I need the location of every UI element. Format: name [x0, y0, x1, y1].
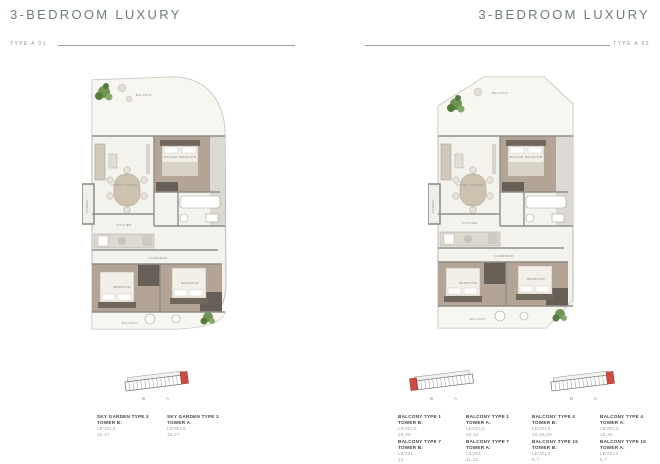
- levels-value: 24,34: [466, 432, 528, 438]
- room-label: KITCHEN: [462, 221, 477, 225]
- room-label: BEDROOM: [459, 281, 477, 285]
- type-label-a01: TYPE A 01: [10, 41, 47, 47]
- room-label: MASTER BEDROOM: [509, 155, 542, 159]
- room-label: KITCHEN: [116, 223, 131, 227]
- unit-info-block: BALCONY TYPE 4 TOWER B: LEVELS 15,25,26: [532, 414, 594, 438]
- room-label: BEDROOM: [181, 281, 199, 285]
- room-label: LIVING / DINING: [110, 183, 138, 187]
- tower-letter-b: B: [570, 396, 573, 401]
- room-label: CORRIDOR: [495, 254, 514, 258]
- dining-table: [114, 174, 140, 206]
- floor-plan-type-a02: BALCONY LIVING / DINING MASTER BEDROOM K…: [428, 66, 584, 342]
- unit-info-block: BALCONY TYPE 7 TOWER A: LEVEL 11,12: [466, 439, 528, 463]
- bed: [170, 268, 208, 304]
- unit-info-block: BALCONY TYPE 7 TOWER B: LEVEL 12: [398, 439, 460, 463]
- highlighted-unit: [409, 378, 417, 391]
- floor-plan-type-a01: BALCONY LIVING / DINING MASTER BEDROOM K…: [82, 66, 238, 342]
- levels-value: 11,12: [466, 457, 528, 463]
- toilet: [180, 214, 188, 222]
- unit-info-block: SKY GARDEN TYPE 2 TOWER B: LEVELS 15,27: [97, 414, 159, 438]
- tower-letter-b: B: [142, 396, 145, 401]
- unit-info-block: BALCONY TYPE 15 TOWER A: LEVELS 5,7: [600, 439, 660, 463]
- page-title-right: 3-BEDROOM LUXURY: [478, 7, 650, 22]
- room-label: BALCONY: [136, 93, 152, 97]
- room-label: BALCONY: [122, 321, 138, 325]
- highlighted-unit: [180, 371, 188, 384]
- levels-value: 15,25,26: [532, 432, 594, 438]
- levels-value: 12: [398, 457, 460, 463]
- room-label: BALCONY: [470, 317, 486, 321]
- room-label: BALCONY: [492, 91, 508, 95]
- divider-line-right: [365, 45, 610, 46]
- bathtub: [526, 196, 566, 208]
- bed: [444, 268, 482, 302]
- tower-letter-a: A: [166, 396, 169, 401]
- room-label: LIVING / DINING: [456, 183, 484, 187]
- building-keyplan: B A: [404, 368, 476, 404]
- bathtub: [180, 196, 220, 208]
- levels-value: 5,7: [532, 457, 594, 463]
- room-label: CORRIDOR: [149, 256, 168, 260]
- unit-info-block: BALCONY TYPE 4 TOWER A: LEVELS 15,25: [600, 414, 660, 438]
- page-title-left: 3-BEDROOM LUXURY: [10, 7, 182, 22]
- bed: [516, 266, 554, 300]
- room-label: POWDER: [431, 199, 435, 212]
- sofa: [441, 144, 451, 180]
- tower-letter-a: A: [594, 396, 597, 401]
- tower-letter-a: A: [454, 396, 457, 401]
- divider-line-left: [58, 45, 295, 46]
- room-label: POWDER: [85, 199, 89, 212]
- bed: [98, 272, 136, 308]
- levels-value: 15,25: [600, 432, 660, 438]
- room-label: BEDROOM: [113, 285, 131, 289]
- type-label-a02: TYPE A 02: [613, 41, 650, 47]
- unit-info-block: SKY GARDEN TYPE 2 TOWER A: LEVELS 15,27: [167, 414, 229, 438]
- sofa: [95, 144, 105, 180]
- room-label: MASTER BEDROOM: [163, 155, 196, 159]
- tower-letter-b: B: [430, 396, 433, 401]
- unit-info-block: BALCONY TYPE 1 TOWER A: LEVELS 24,34: [466, 414, 528, 438]
- building-keyplan: B A: [122, 368, 194, 404]
- levels-value: 5,7: [600, 457, 660, 463]
- dining-table: [460, 174, 486, 206]
- levels-value: 15,27: [97, 432, 159, 438]
- unit-info-block: BALCONY TYPE 15 TOWER B: LEVELS 5,7: [532, 439, 594, 463]
- highlighted-unit: [606, 371, 614, 384]
- levels-value: 25,35: [398, 432, 460, 438]
- levels-value: 15,27: [167, 432, 229, 438]
- brochure-spread: 3-BEDROOM LUXURY TYPE A 01 3-BEDROOM LUX…: [0, 0, 660, 464]
- room-label: BEDROOM: [527, 277, 545, 281]
- building-keyplan: B A: [548, 368, 620, 404]
- toilet: [526, 214, 534, 222]
- unit-info-block: BALCONY TYPE 1 TOWER B: LEVELS 25,35: [398, 414, 460, 438]
